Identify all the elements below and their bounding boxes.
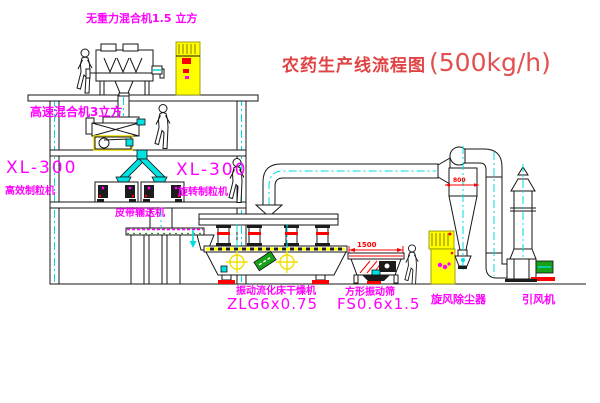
granulators (95, 182, 184, 202)
dryer-air-nozzles (216, 225, 330, 246)
label-dryer-model: ZLG6x0.75 (227, 297, 318, 312)
dimension-screen-length: 1500 (357, 242, 376, 249)
vibrating-screen (348, 246, 404, 284)
worker-ground (405, 245, 418, 284)
dimension-cyclone: 800 (453, 178, 466, 184)
control-cabinet-top (176, 42, 200, 95)
label-granulator-right-name: 旋转制粒机 (178, 188, 228, 198)
label-screen-model: FS0.6x1.5 (337, 297, 420, 312)
label-granulator-left-name: 高效制粒机 (5, 187, 55, 197)
page-title: 农药生产线流程图 (500kg/h) (282, 48, 551, 77)
label-belt-conveyor: 皮带输送机 (115, 209, 165, 219)
label-cyclone: 旋风除尘器 (431, 294, 486, 305)
worker-second-floor (155, 105, 170, 149)
label-fan: 引风机 (522, 294, 555, 305)
title-text: 农药生产线流程图 (282, 51, 426, 76)
pesticide-line-flow-diagram: 农药生产线流程图 (500kg/h) 无重力混合机1.5 立方 高速混合机3立方… (0, 0, 600, 403)
label-granulator-right-model: XL-300 (176, 162, 247, 179)
label-high-speed-mixer: 高速混合机3立方 (30, 106, 122, 118)
belt-conveyor (126, 228, 214, 284)
induced-draft-fan (505, 259, 555, 282)
label-granulator-left-model: XL-300 (6, 160, 77, 177)
control-cabinet-bottom (429, 231, 455, 284)
label-gravity-mixer: 无重力混合机1.5 立方 (86, 13, 197, 24)
title-capacity: (500kg/h) (429, 48, 551, 77)
gravity-free-mixer (86, 44, 164, 97)
